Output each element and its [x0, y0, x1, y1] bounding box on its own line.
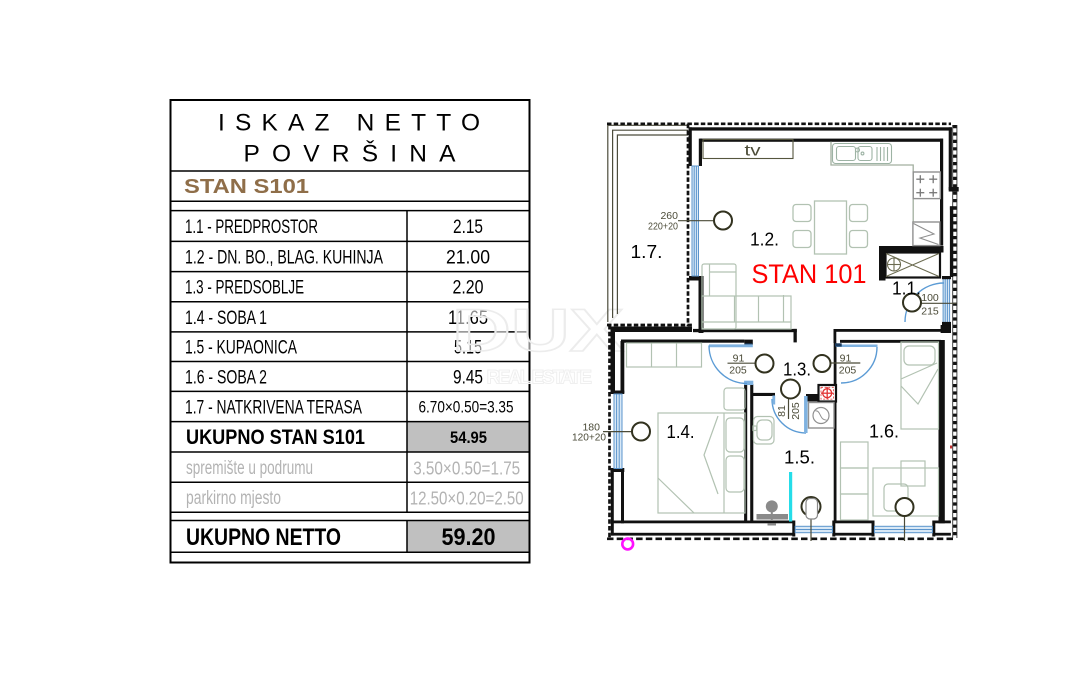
svg-text:54.95: 54.95 — [450, 428, 487, 447]
svg-text:2.15: 2.15 — [453, 216, 483, 238]
svg-text:120+20: 120+20 — [572, 432, 606, 444]
svg-text:91: 91 — [733, 353, 745, 365]
svg-text:91: 91 — [840, 353, 852, 365]
svg-text:1.2.: 1.2. — [750, 230, 779, 250]
svg-text:tv: tv — [745, 143, 761, 160]
svg-text:1.4.: 1.4. — [667, 422, 695, 442]
svg-text:2.20: 2.20 — [453, 277, 484, 299]
svg-text:DUX: DUX — [452, 297, 624, 364]
svg-text:12.50×0.20=2.50: 12.50×0.20=2.50 — [410, 488, 524, 509]
svg-text:59.20: 59.20 — [442, 524, 496, 551]
svg-text:215: 215 — [921, 306, 939, 318]
svg-text:1.1.: 1.1. — [892, 279, 921, 299]
svg-text:21.00: 21.00 — [446, 247, 490, 269]
svg-text:1.5 - KUPAONICA: 1.5 - KUPAONICA — [185, 337, 297, 359]
svg-text:6.70×0.50=3.35: 6.70×0.50=3.35 — [419, 398, 514, 417]
svg-text:220+20: 220+20 — [648, 221, 678, 233]
svg-text:1.3.: 1.3. — [783, 360, 811, 380]
svg-text:100: 100 — [921, 292, 939, 304]
svg-text:STAN S101: STAN S101 — [184, 176, 309, 198]
svg-text:1.6 - SOBA 2: 1.6 - SOBA 2 — [185, 366, 267, 388]
svg-text:205: 205 — [790, 402, 802, 420]
svg-text:205: 205 — [839, 365, 857, 377]
svg-text:parkirno mjesto: parkirno mjesto — [186, 488, 281, 509]
svg-text:STAN 101: STAN 101 — [752, 259, 867, 289]
svg-text:1.4 - SOBA 1: 1.4 - SOBA 1 — [185, 307, 267, 329]
svg-text:1.6.: 1.6. — [869, 422, 899, 442]
svg-text:UKUPNO NETTO: UKUPNO NETTO — [186, 524, 341, 551]
svg-text:9.45: 9.45 — [453, 366, 483, 388]
svg-text:1.5.: 1.5. — [784, 448, 815, 468]
svg-text:1.7 - NATKRIVENA TERASA: 1.7 - NATKRIVENA TERASA — [185, 397, 362, 419]
svg-text:UKUPNO STAN S101: UKUPNO STAN S101 — [186, 425, 365, 449]
svg-text:1.3 - PREDSOBLJE: 1.3 - PREDSOBLJE — [185, 277, 304, 299]
svg-text:1.1 - PREDPROSTOR: 1.1 - PREDPROSTOR — [185, 216, 318, 238]
svg-text:81: 81 — [776, 405, 788, 417]
svg-text:205: 205 — [729, 365, 747, 377]
svg-text:3.50×0.50=1.75: 3.50×0.50=1.75 — [413, 458, 520, 479]
svg-text:REAL ESTATE: REAL ESTATE — [487, 368, 593, 389]
svg-text:1.2 - DN. BO., BLAG. KUHINJA: 1.2 - DN. BO., BLAG. KUHINJA — [185, 247, 383, 269]
svg-text:spremište u podrumu: spremište u podrumu — [186, 458, 313, 479]
svg-text:1.7.: 1.7. — [631, 242, 663, 262]
